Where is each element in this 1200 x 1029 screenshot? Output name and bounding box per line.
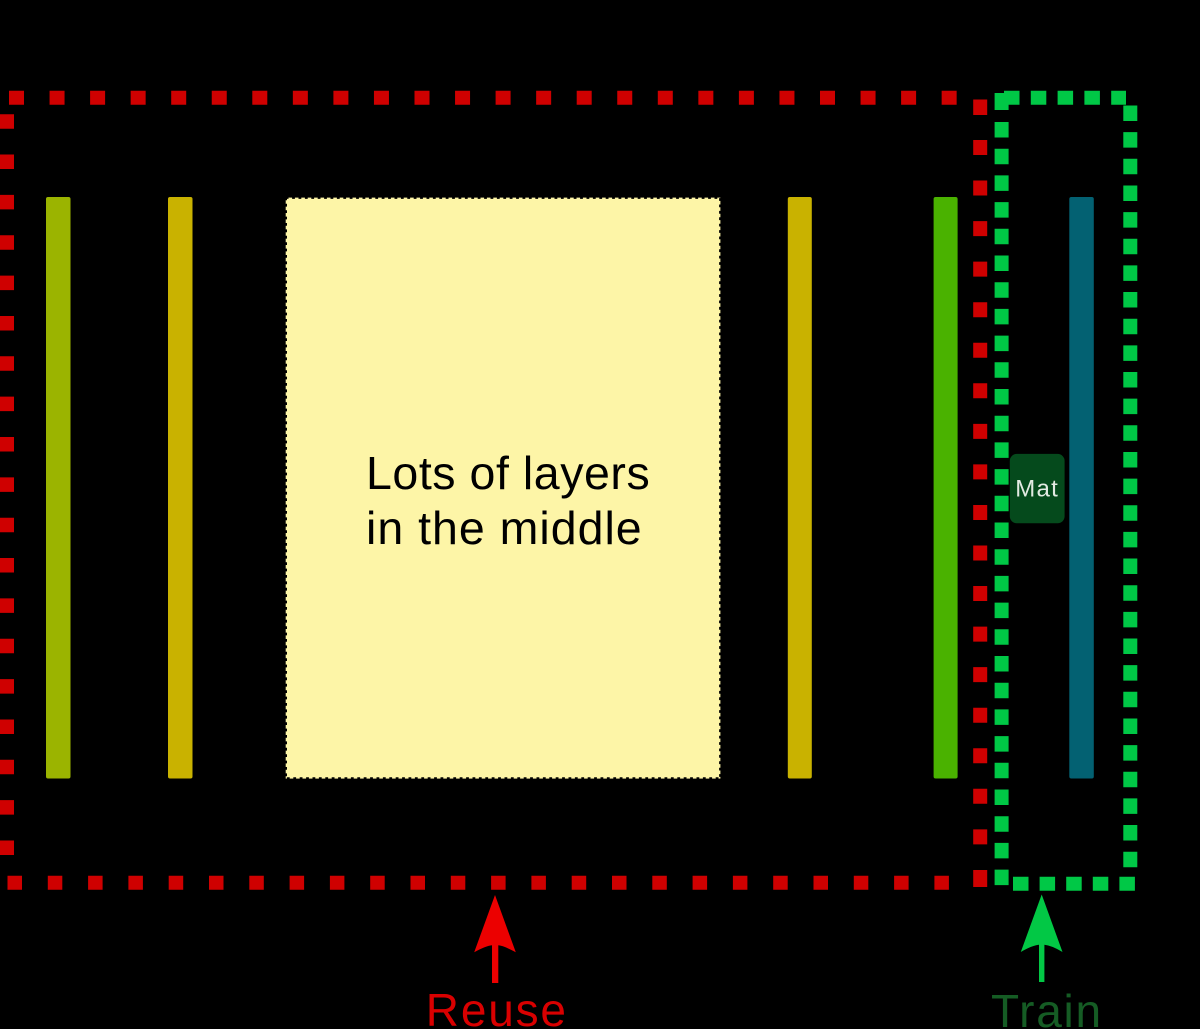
svg-text:Train: Train bbox=[991, 985, 1103, 1029]
svg-text:Reuse: Reuse bbox=[426, 984, 568, 1029]
svg-text:Lots of layers: Lots of layers bbox=[366, 447, 650, 499]
svg-text:in the middle: in the middle bbox=[366, 502, 643, 554]
svg-text:Mat: Mat bbox=[1015, 476, 1059, 503]
